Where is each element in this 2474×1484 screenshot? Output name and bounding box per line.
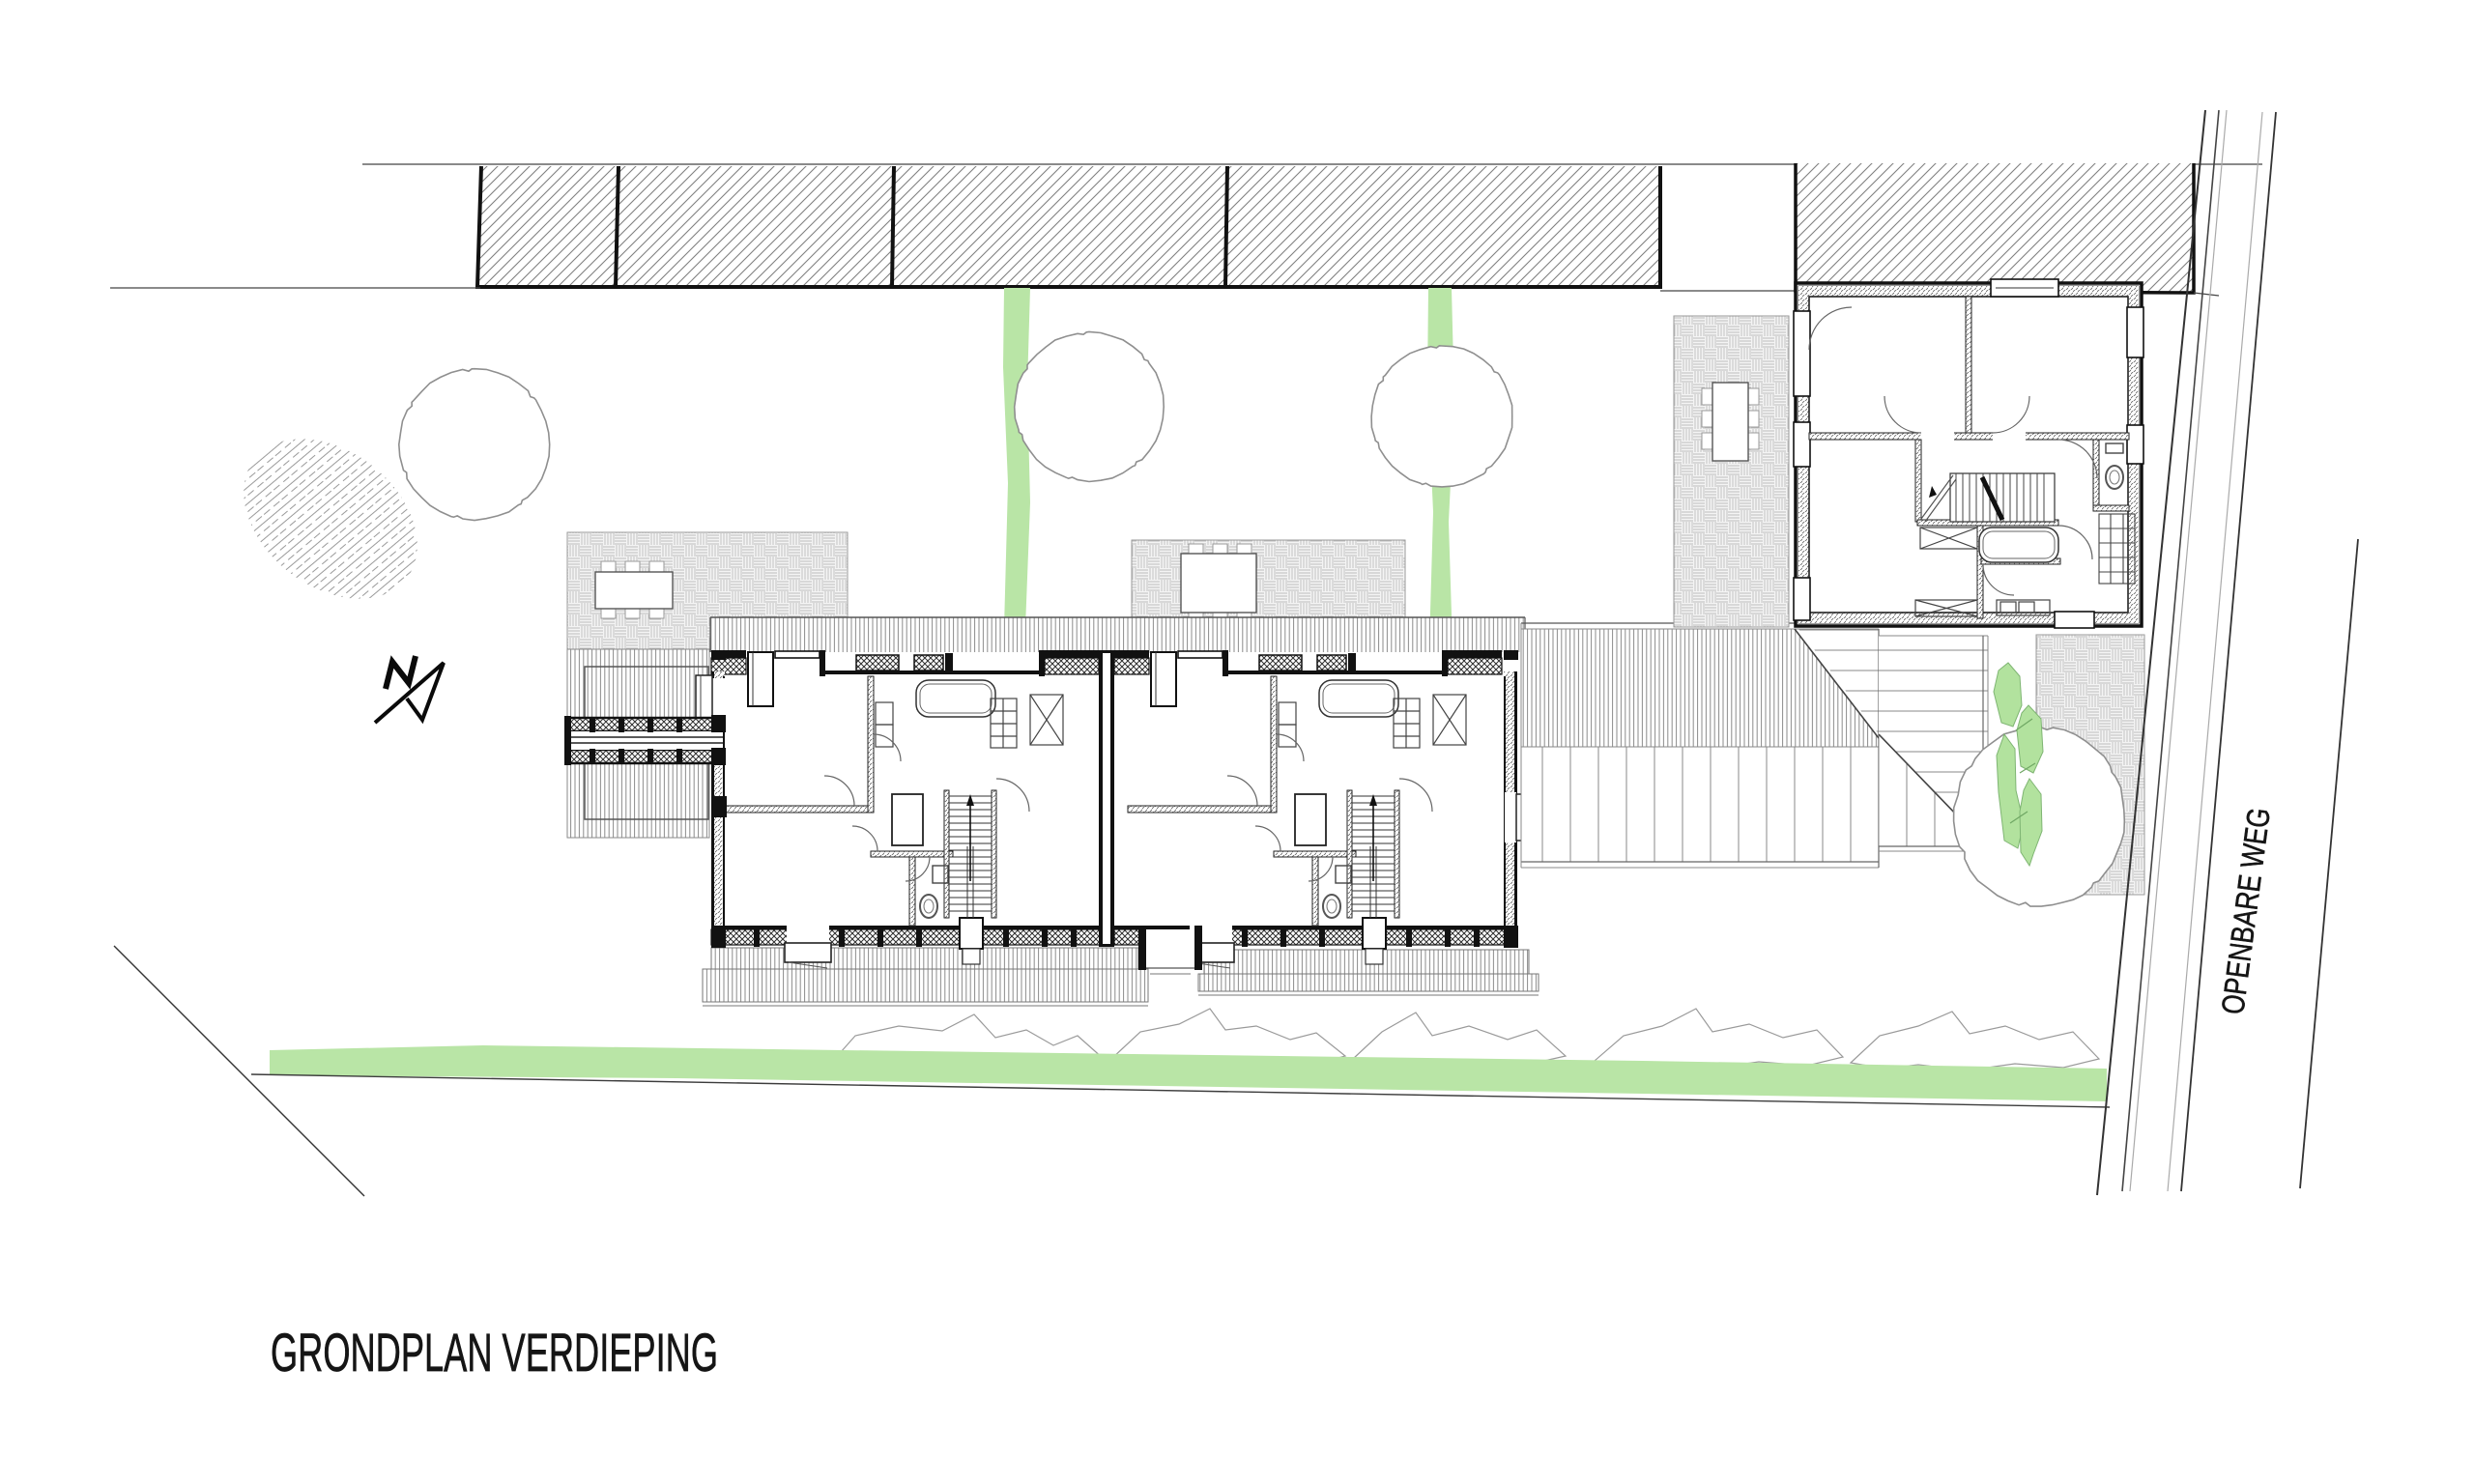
svg-text:GRONDPLAN VERDIEPING: GRONDPLAN VERDIEPING <box>271 1322 718 1383</box>
